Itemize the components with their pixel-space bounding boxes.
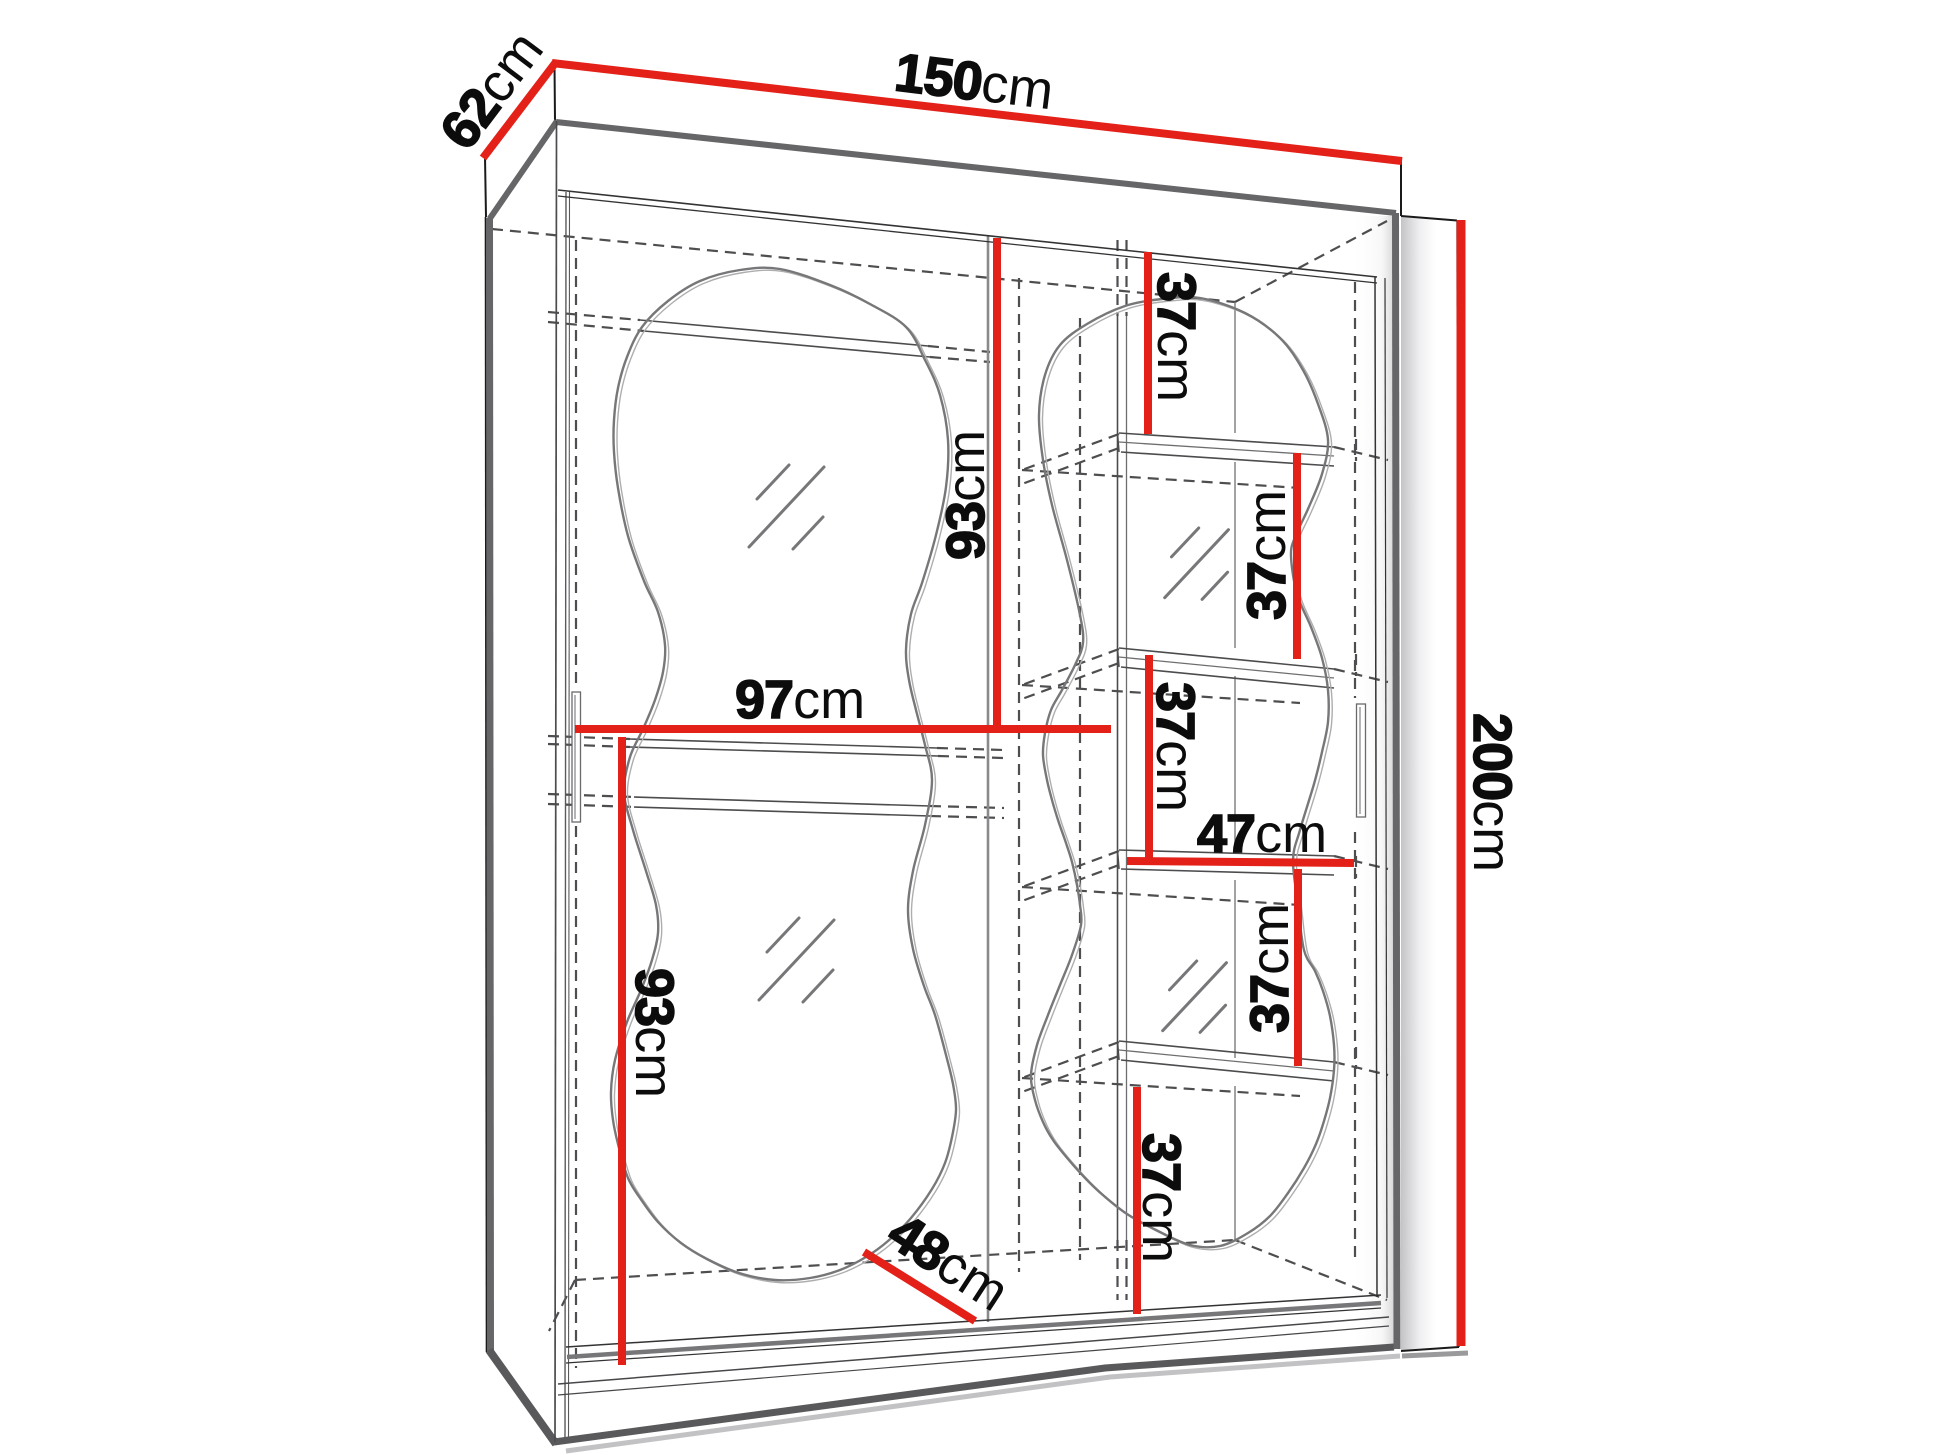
svg-text:200cm: 200cm xyxy=(1462,713,1522,872)
svg-text:37cm: 37cm xyxy=(1240,903,1300,1033)
svg-text:97cm: 97cm xyxy=(735,670,865,730)
svg-text:47cm: 47cm xyxy=(1197,804,1327,864)
svg-text:93cm: 93cm xyxy=(624,968,684,1098)
svg-text:93cm: 93cm xyxy=(936,430,996,560)
svg-text:37cm: 37cm xyxy=(1131,1133,1191,1263)
svg-text:37cm: 37cm xyxy=(1145,682,1205,812)
svg-text:37cm: 37cm xyxy=(1237,490,1297,620)
svg-text:37cm: 37cm xyxy=(1146,272,1206,402)
